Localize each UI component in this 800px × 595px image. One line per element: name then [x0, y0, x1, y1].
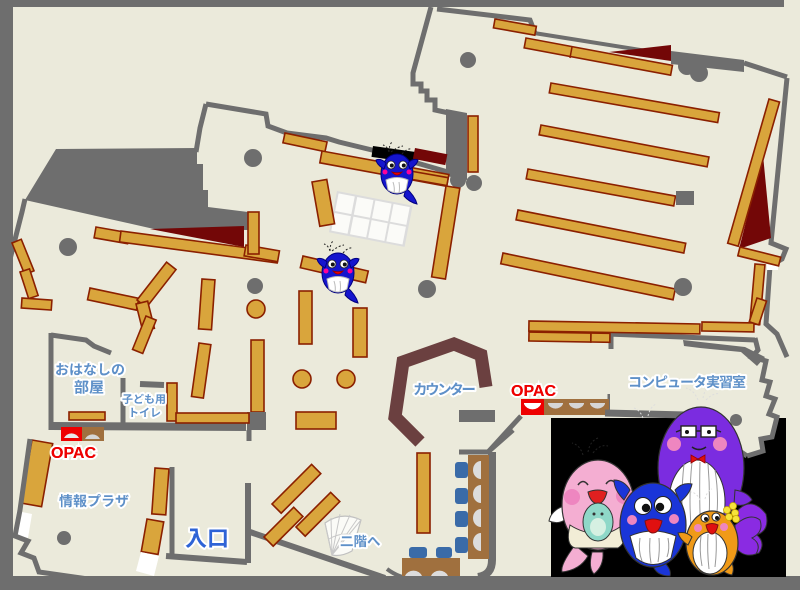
svg-text:OPAC: OPAC	[511, 383, 556, 400]
svg-text:OPAC: OPAC	[51, 445, 96, 462]
